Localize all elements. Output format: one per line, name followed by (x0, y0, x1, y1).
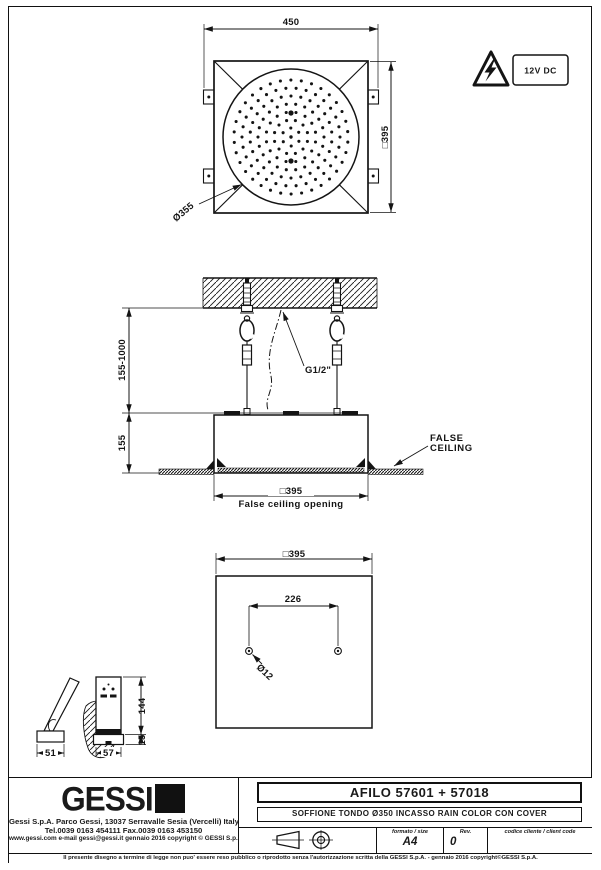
ceiling-slab (203, 278, 377, 308)
drawing-title: AFILO 57601 + 57018 (257, 782, 582, 803)
svg-text:False ceiling opening: False ceiling opening (238, 499, 343, 510)
recessed-housing (214, 409, 368, 474)
address-line: Gessi S.p.A. Parco Gessi, 13037 Serraval… (9, 817, 238, 826)
false-ceiling-label: FALSE CEILING (394, 433, 473, 466)
format-cell: formato / size A4 (376, 828, 443, 854)
dim-square-bottom: □395 (216, 549, 372, 574)
gessi-logo-text: GESSI (61, 781, 153, 816)
revision-label: Rev. (460, 828, 472, 836)
svg-text:57: 57 (103, 748, 114, 759)
connection-label: G1/2" (283, 312, 331, 376)
dim-square-395: □395 (370, 62, 396, 213)
remote-body-front (96, 677, 121, 734)
svg-text:144: 144 (137, 697, 148, 714)
svg-text:15: 15 (137, 734, 148, 745)
client-code-cell: codice cliente / client code (487, 828, 592, 854)
bottom-view: □395 226 Ø12 (216, 549, 372, 728)
drawing-sheet: 450 □395 Ø355 12V DC (0, 0, 601, 870)
svg-text:CEILING: CEILING (430, 443, 473, 454)
svg-text:G1/2": G1/2" (305, 365, 331, 376)
svg-text:51: 51 (45, 748, 56, 759)
gessi-logo: GESSI (9, 779, 238, 817)
voltage-label: 12V DC (524, 66, 557, 76)
revision-value: 0 (444, 836, 456, 849)
svg-text:□395: □395 (283, 549, 306, 560)
top-view: 450 □395 Ø355 (171, 17, 396, 224)
technical-drawing-canvas: 450 □395 Ø355 12V DC (0, 0, 601, 870)
first-angle-projection-icon (271, 830, 345, 850)
remote-base-side (37, 731, 64, 742)
manufacturer-block: GESSI Gessi S.p.A. Parco Gessi, 13037 Se… (9, 778, 239, 853)
flexible-hose (267, 310, 281, 410)
dim-remote-height: 144 15 (123, 677, 148, 745)
format-label: formato / size (392, 828, 428, 836)
title-block: GESSI Gessi S.p.A. Parco Gessi, 13037 Se… (9, 777, 592, 864)
gessi-logo-square-icon (155, 784, 185, 813)
svg-text:155-1000: 155-1000 (117, 339, 128, 381)
svg-text:450: 450 (283, 17, 299, 28)
meta-row: formato / size A4 Rev. 0 codice cliente … (239, 827, 592, 854)
drawing-subtitle: SOFFIONE TONDO Ø350 INCASSO RAIN COLOR C… (257, 807, 582, 822)
svg-text:226: 226 (285, 594, 301, 605)
power-warning: 12V DC (474, 52, 568, 85)
revision-cell: Rev. 0 (443, 828, 487, 854)
client-code-label: codice cliente / client code (505, 828, 576, 836)
section-view: G1/2" (117, 278, 473, 510)
svg-text:Ø355: Ø355 (171, 200, 197, 224)
legal-disclaimer: Il presente disegno a termine di legge n… (9, 853, 592, 864)
svg-text:□395: □395 (380, 125, 391, 148)
svg-text:155: 155 (117, 434, 128, 451)
dim-opening: □395 False ceiling opening (214, 475, 368, 510)
format-value: A4 (403, 836, 418, 849)
svg-text:□395: □395 (280, 486, 303, 497)
dim-remote-depth: 51 (37, 744, 64, 759)
projection-cell (239, 828, 376, 854)
web-line: www.gessi.com e-mail gessi@gessi.it genn… (9, 835, 238, 844)
drawing-info-block: AFILO 57601 + 57018 SOFFIONE TONDO Ø350 … (239, 778, 592, 853)
